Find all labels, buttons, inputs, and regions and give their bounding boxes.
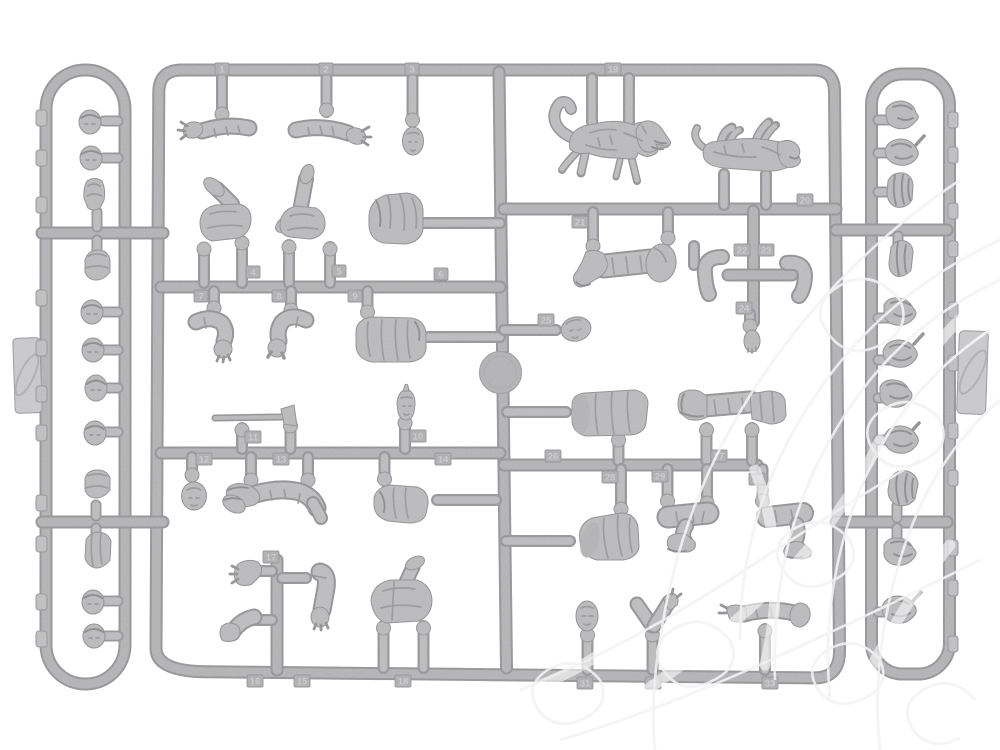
svg-text:11: 11	[248, 433, 259, 444]
svg-text:29: 29	[655, 472, 666, 483]
svg-text:8: 8	[276, 292, 281, 303]
svg-text:1: 1	[219, 65, 225, 76]
svg-text:2: 2	[323, 65, 328, 76]
svg-text:20: 20	[800, 196, 811, 207]
svg-text:5: 5	[336, 267, 342, 278]
svg-text:24: 24	[739, 304, 750, 315]
svg-text:18: 18	[398, 677, 409, 688]
svg-text:31: 31	[580, 679, 591, 690]
svg-text:26: 26	[548, 452, 559, 463]
svg-text:13: 13	[276, 455, 287, 466]
svg-text:12: 12	[199, 455, 210, 466]
svg-text:7: 7	[198, 292, 203, 303]
svg-text:16: 16	[250, 677, 261, 688]
svg-text:9: 9	[352, 292, 357, 303]
svg-text:22: 22	[737, 246, 748, 257]
svg-text:17: 17	[266, 553, 277, 564]
svg-text:28: 28	[605, 473, 616, 484]
svg-text:33: 33	[765, 679, 776, 690]
svg-text:14: 14	[438, 455, 449, 466]
svg-text:19: 19	[608, 65, 619, 76]
svg-text:6: 6	[438, 270, 443, 281]
svg-text:10: 10	[413, 432, 424, 443]
svg-text:23: 23	[761, 246, 772, 257]
svg-text:3: 3	[409, 65, 414, 76]
svg-text:15: 15	[297, 677, 308, 688]
svg-text:4: 4	[250, 268, 256, 279]
svg-text:21: 21	[575, 218, 586, 229]
svg-text:25: 25	[541, 316, 552, 327]
